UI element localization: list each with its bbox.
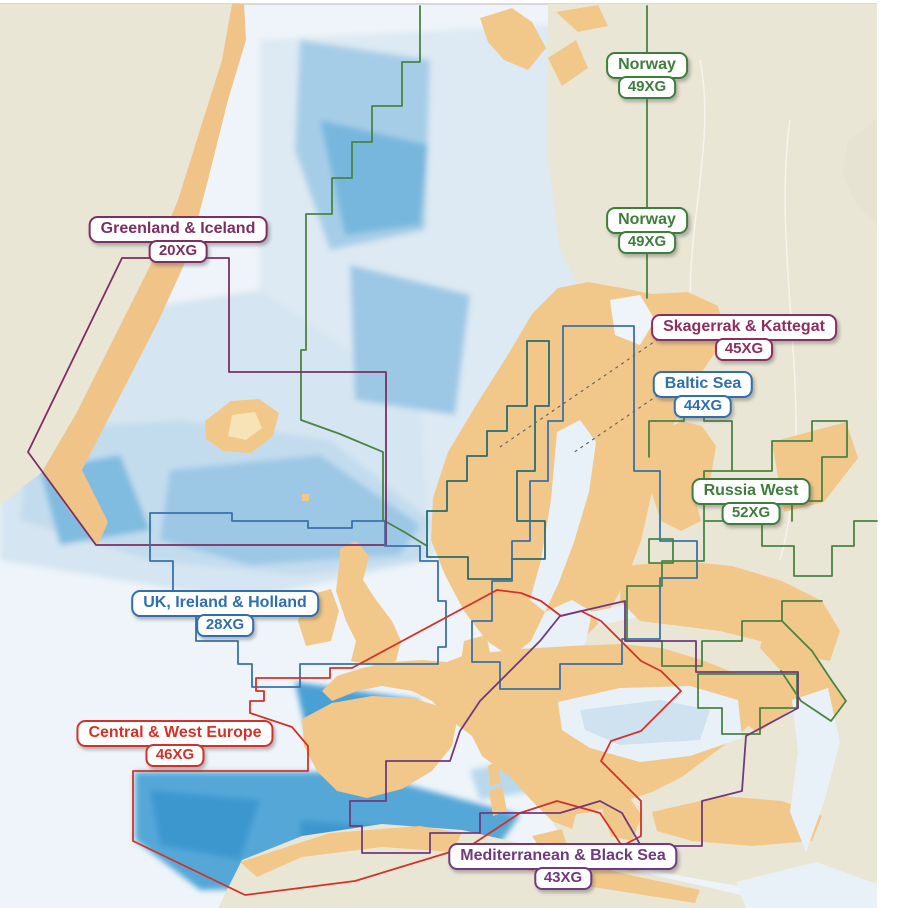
region-name: Baltic Sea: [653, 371, 753, 398]
region-label-uk-ireland-holland[interactable]: UK, Ireland & Holland 28XG: [131, 590, 319, 637]
region-label-skagerrak-kattegat[interactable]: Skagerrak & Kattegat 45XG: [651, 314, 837, 361]
chart-coverage-map: Norway 49XG Norway 49XG Greenland & Icel…: [0, 0, 908, 908]
region-name: Mediterranean & Black Sea: [448, 843, 677, 870]
region-label-central-west-europe[interactable]: Central & West Europe 46XG: [76, 720, 273, 767]
region-code: 20XG: [149, 240, 207, 263]
region-code: 46XG: [146, 744, 204, 767]
region-label-baltic-sea[interactable]: Baltic Sea 44XG: [653, 371, 753, 418]
region-code: 49XG: [618, 231, 676, 254]
region-name: Norway: [606, 207, 688, 234]
region-code: 28XG: [196, 614, 254, 637]
region-code: 45XG: [715, 338, 773, 361]
region-name: Greenland & Iceland: [89, 216, 268, 243]
region-code: 52XG: [722, 502, 780, 525]
region-label-norway-upper[interactable]: Norway 49XG: [606, 52, 688, 99]
region-label-norway-lower[interactable]: Norway 49XG: [606, 207, 688, 254]
region-label-greenland-iceland[interactable]: Greenland & Iceland 20XG: [89, 216, 268, 263]
region-name: UK, Ireland & Holland: [131, 590, 319, 617]
region-label-mediterranean-black-sea[interactable]: Mediterranean & Black Sea 43XG: [448, 843, 677, 890]
region-code: 44XG: [674, 395, 732, 418]
region-name: Skagerrak & Kattegat: [651, 314, 837, 341]
region-name: Central & West Europe: [76, 720, 273, 747]
region-code: 43XG: [534, 867, 592, 890]
europe-base-map: [0, 0, 908, 908]
region-label-russia-west[interactable]: Russia West 52XG: [692, 478, 811, 525]
region-name: Russia West: [692, 478, 811, 505]
region-code: 49XG: [618, 76, 676, 99]
region-name: Norway: [606, 52, 688, 79]
